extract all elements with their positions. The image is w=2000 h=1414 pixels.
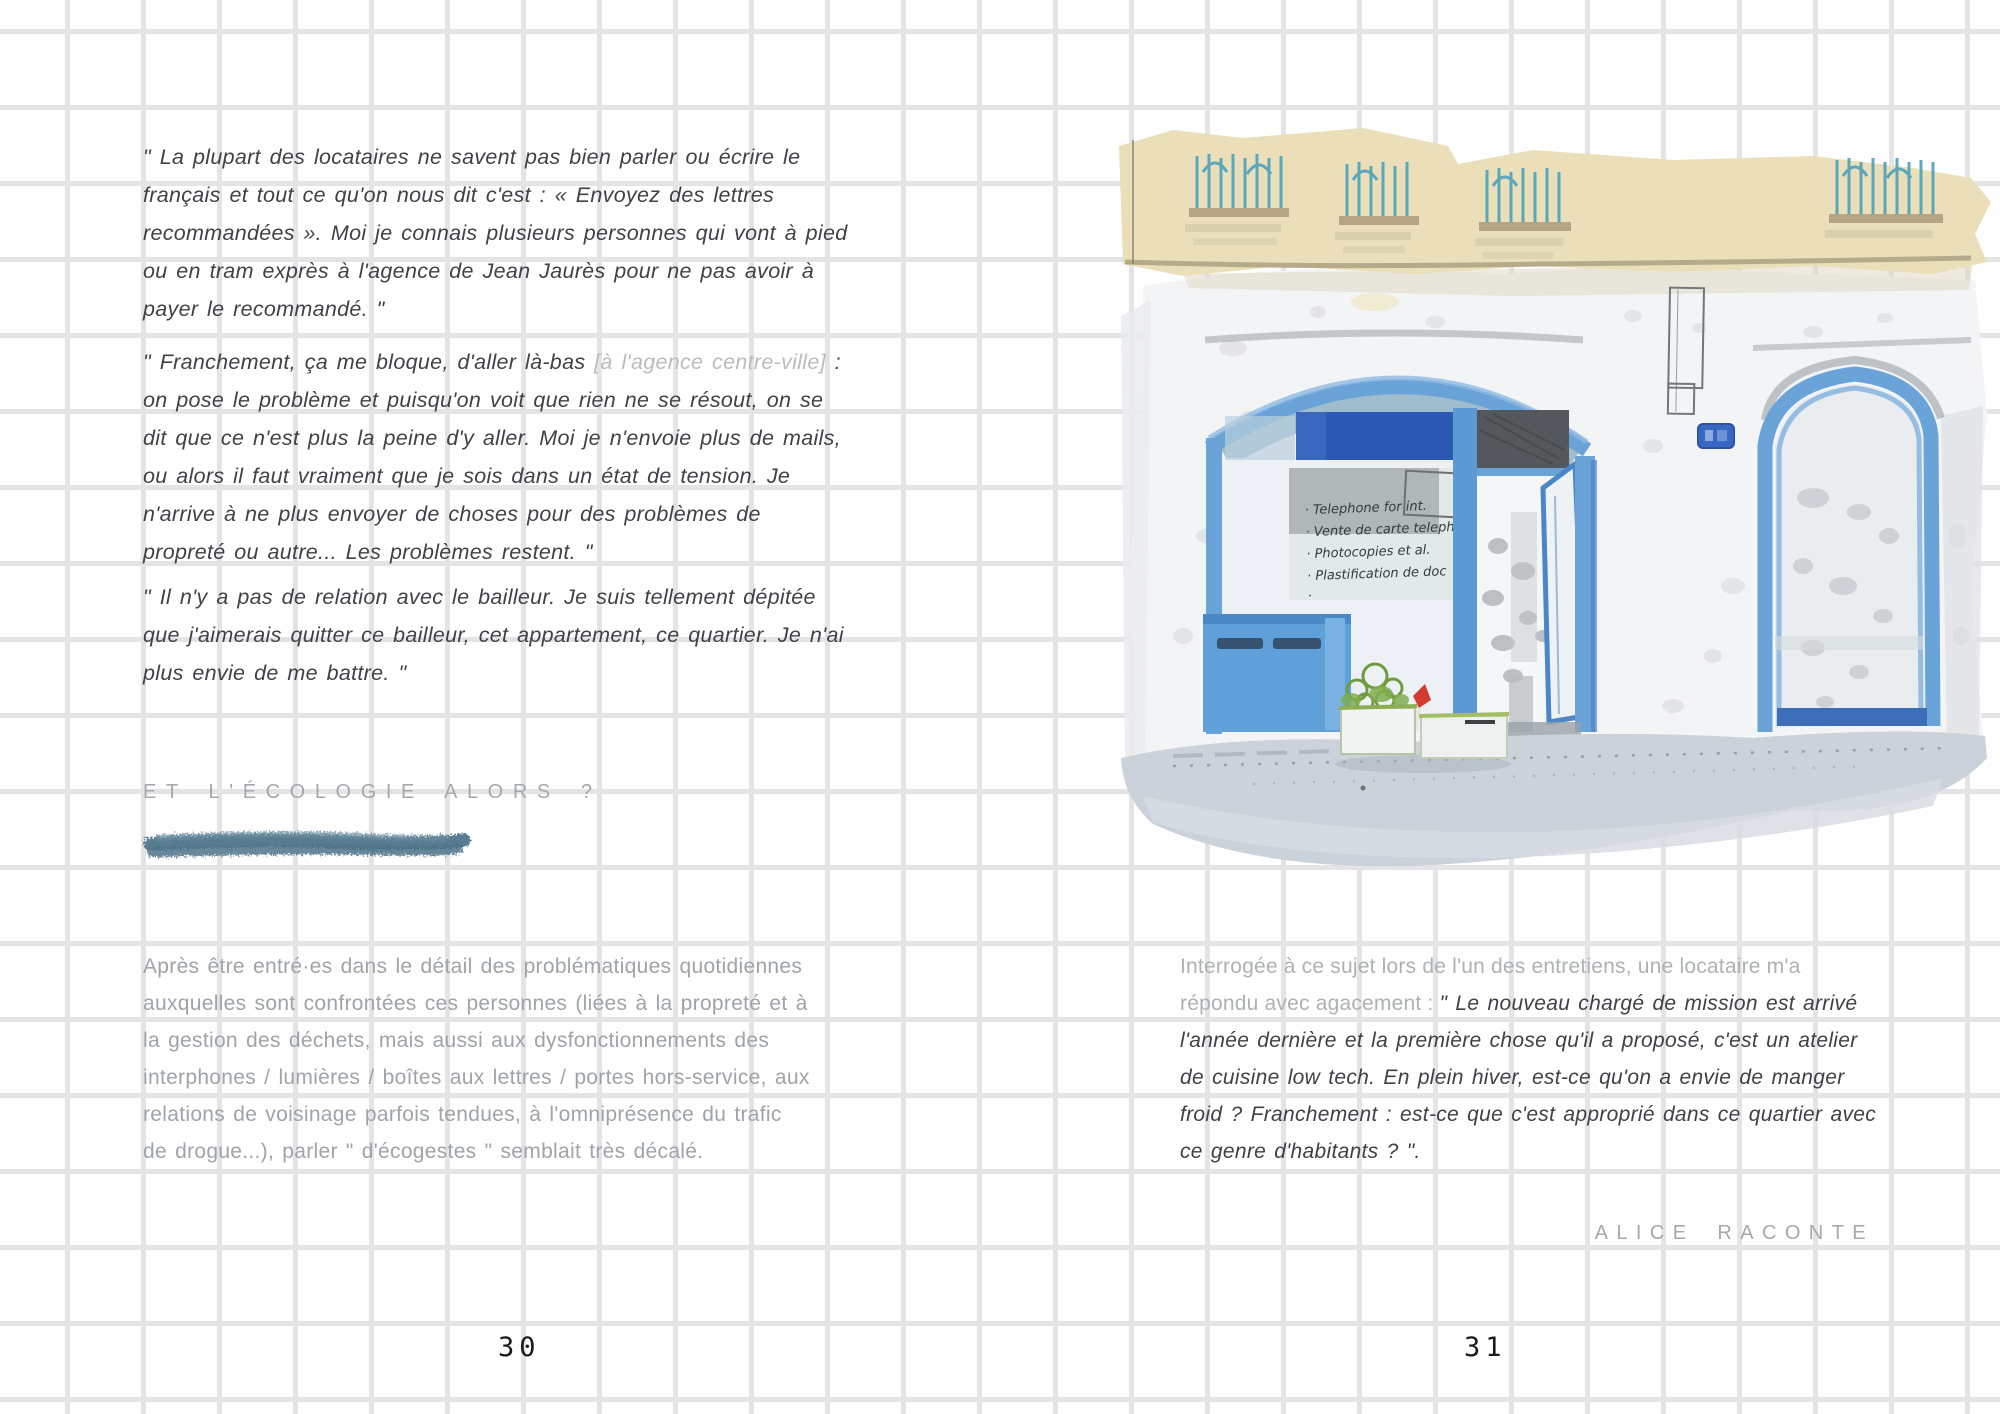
- author-signature: ALICE RACONTE: [1180, 1222, 1874, 1245]
- arch-bottom-rail: [1777, 708, 1927, 726]
- left-paragraph: Après être entré·es dans le détail des p…: [143, 948, 811, 1170]
- right-paragraph: Interrogée à ce sujet lors de l'un des e…: [1180, 948, 1880, 1170]
- scribble-svg: [140, 824, 474, 870]
- section-heading: ET L'ÉCOLOGIE ALORS ?: [143, 781, 602, 804]
- quote-2-part1: " Franchement, ça me bloque, d'aller là-…: [143, 350, 594, 374]
- page-number-right: 31: [1464, 1332, 1507, 1363]
- highlight-scribble: [140, 824, 474, 870]
- quote-3: " Il n'y a pas de relation avec le baill…: [143, 578, 851, 692]
- sidewalk: [1121, 731, 1987, 866]
- shop-door: [1453, 408, 1597, 736]
- sign-line-5: ·: [1308, 589, 1313, 604]
- right-paragraph-quote: " Le nouveau chargé de mission est arriv…: [1180, 992, 1876, 1163]
- storefront-illustration: · Telephone for int. · Vente de carte te…: [1113, 116, 2000, 900]
- page-number-left: 30: [498, 1332, 541, 1363]
- house-number-plaque: [1698, 424, 1734, 448]
- crate-back: [1341, 708, 1415, 754]
- right-arch: [1765, 360, 1941, 732]
- quote-2: " Franchement, ça me bloque, d'aller là-…: [143, 343, 851, 571]
- book-spread: { "left_page": { "quote1": "\" La plupar…: [0, 0, 2000, 1414]
- storefront-svg: · Telephone for int. · Vente de carte te…: [1113, 116, 2000, 900]
- quote-2-bracket: [à l'agence centre-ville]: [594, 350, 826, 374]
- window-sign: · Telephone for int. · Vente de carte te…: [1289, 468, 1461, 604]
- quote-1: " La plupart des locataires ne savent pa…: [143, 138, 851, 328]
- kick-panel: [1203, 614, 1351, 732]
- quote-2-part2: : on pose le problème et puisqu'on voit …: [143, 350, 841, 564]
- door-mullion: [1453, 408, 1477, 732]
